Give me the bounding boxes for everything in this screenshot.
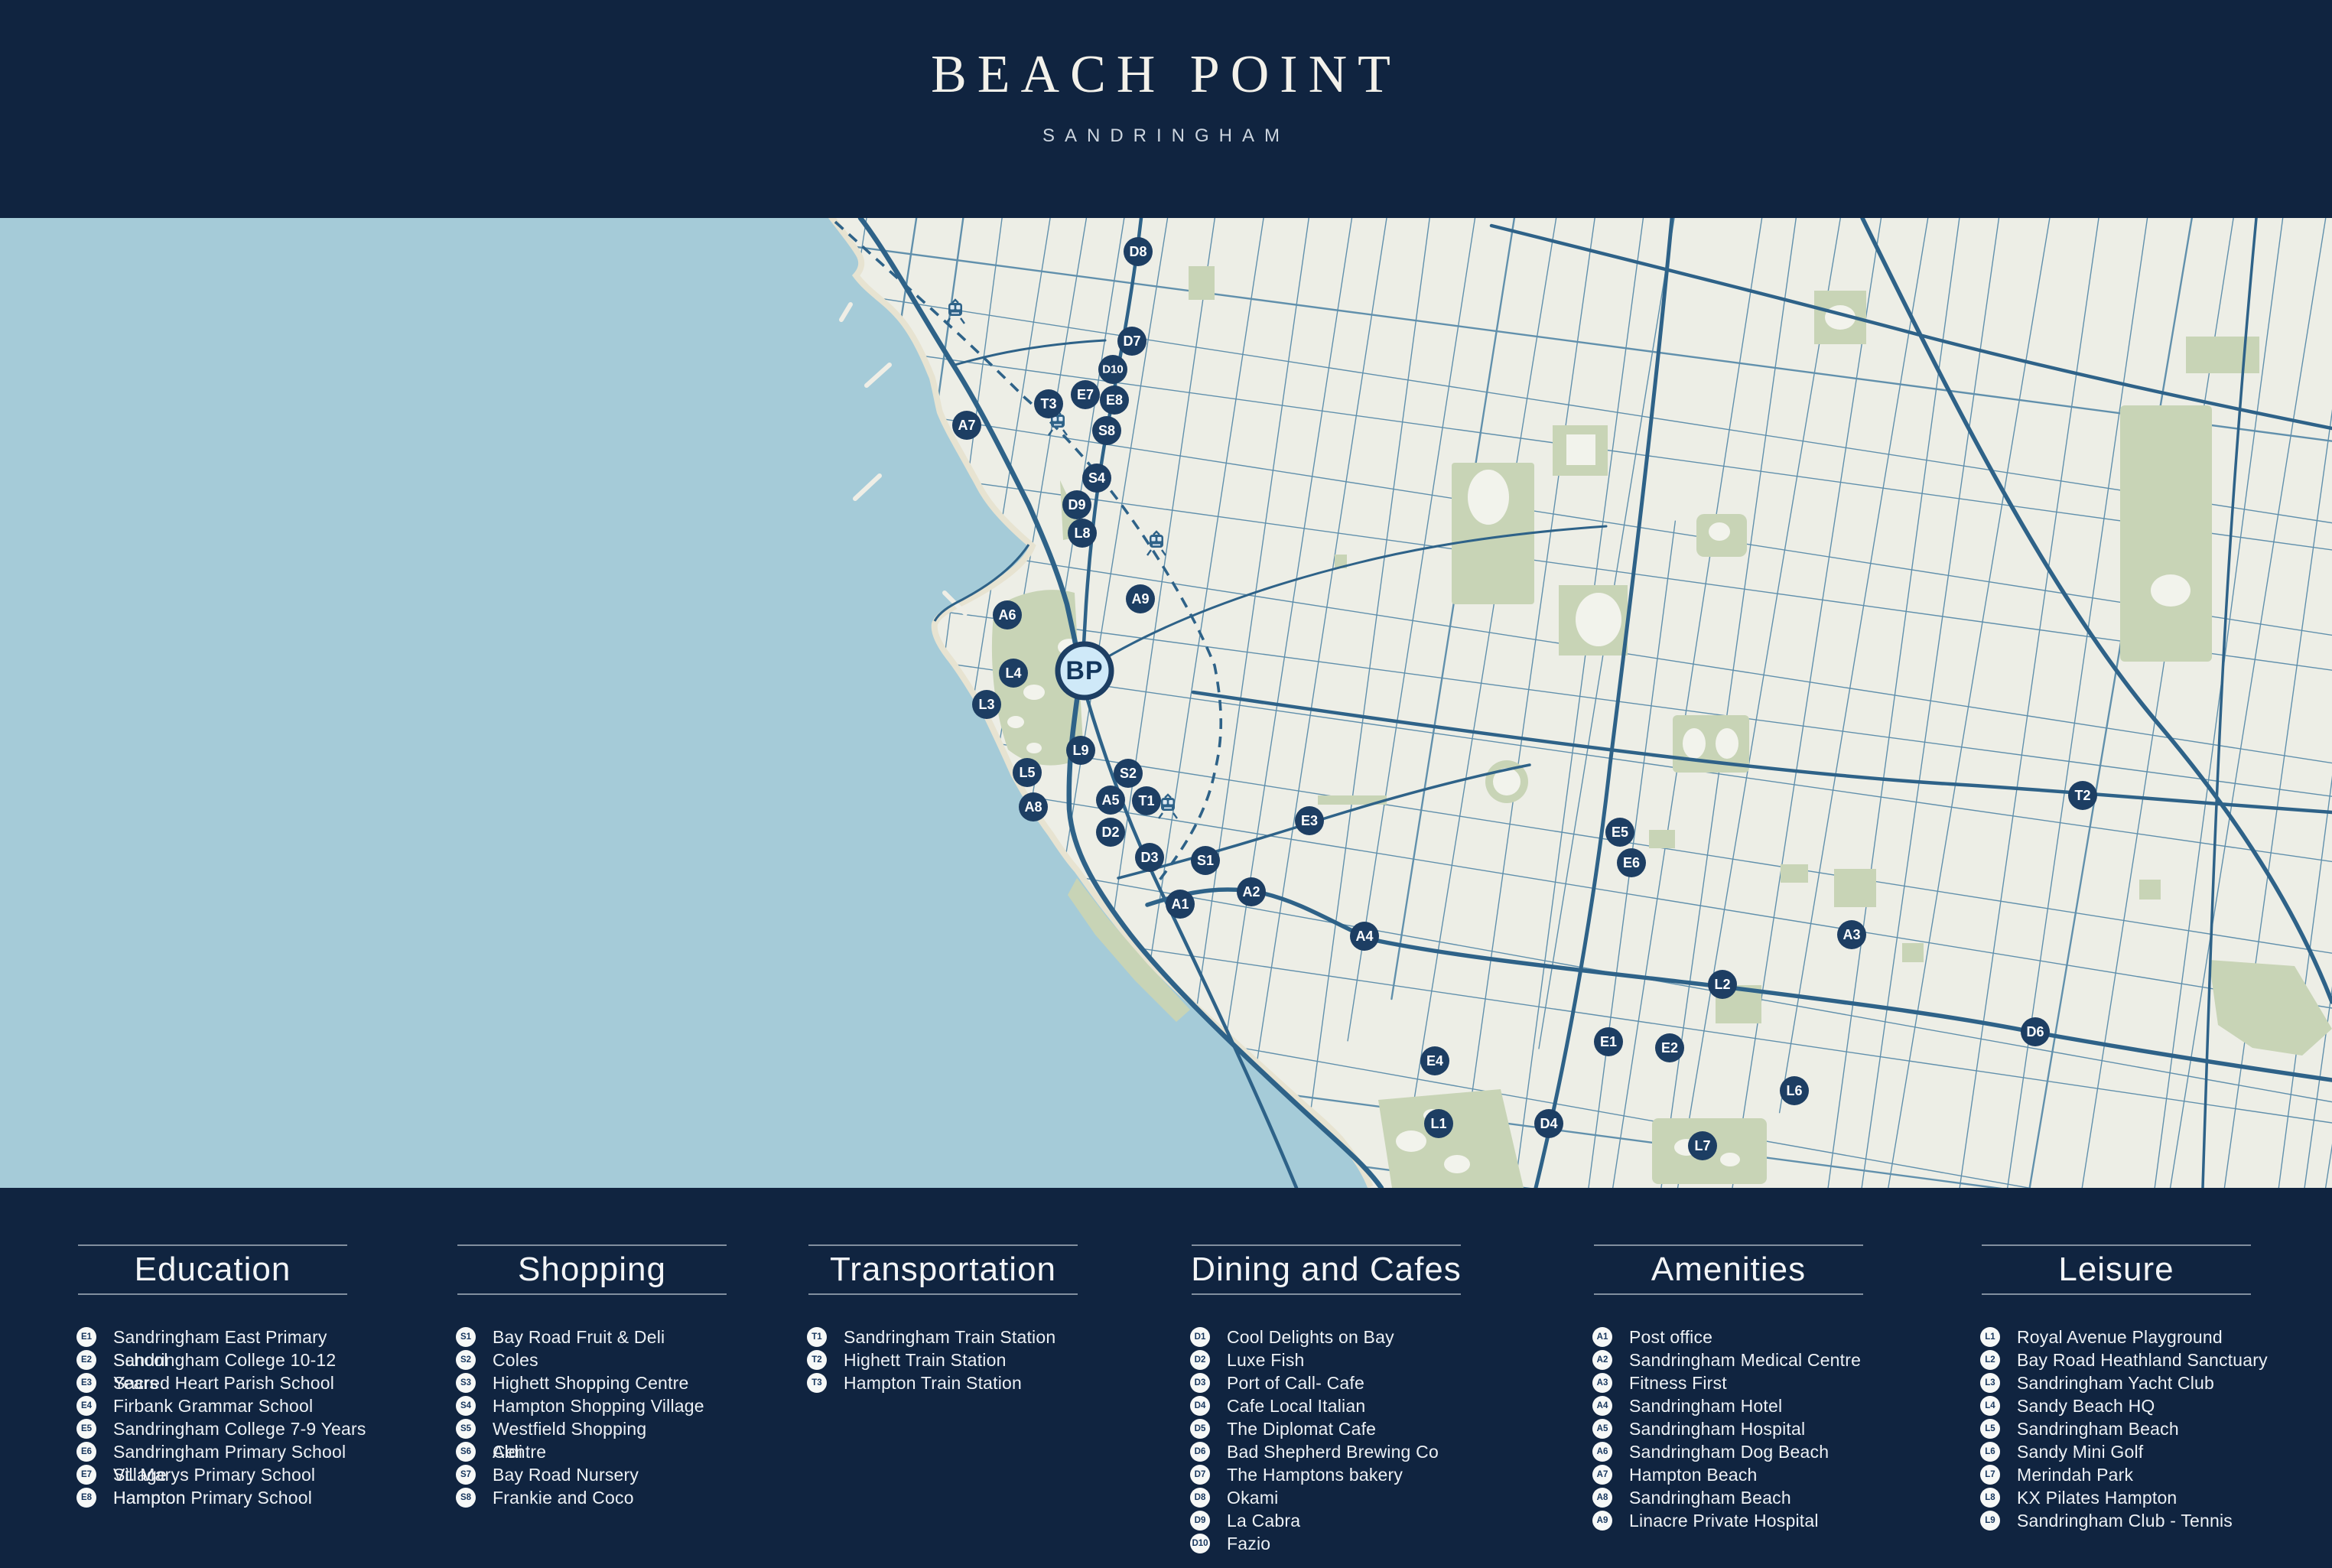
map-marker-E4: E4 — [1420, 1046, 1449, 1075]
map-marker-A1: A1 — [1166, 890, 1195, 919]
legend-item-D4: D4Cafe Local Italian — [1190, 1394, 1494, 1417]
legend-rule — [1192, 1244, 1461, 1246]
legend-badge-A6: A6 — [1592, 1442, 1612, 1462]
legend-badge-L1: L1 — [1980, 1327, 2000, 1347]
legend-label: Sandringham Beach — [1629, 1486, 1791, 1509]
legend-item-A9: A9Linacre Private Hospital — [1592, 1509, 1897, 1532]
legend-item-A4: A4Sandringham Hotel — [1592, 1394, 1897, 1417]
svg-text:L6: L6 — [1786, 1083, 1802, 1098]
legend-label: Port of Call- Cafe — [1227, 1371, 1364, 1394]
map-marker-D10: D10 — [1098, 355, 1127, 384]
legend-badge-L8: L8 — [1980, 1488, 2000, 1508]
legend-item-D8: D8Okami — [1190, 1486, 1494, 1509]
svg-text:E6: E6 — [1623, 855, 1640, 870]
map-marker-A2: A2 — [1237, 877, 1266, 906]
legend-label: La Cabra — [1227, 1509, 1300, 1532]
map-marker-D9: D9 — [1062, 490, 1091, 519]
legend-label: Sandringham Club - Tennis — [2017, 1509, 2233, 1532]
legend-rule — [457, 1244, 727, 1246]
map-marker-A7: A7 — [952, 411, 981, 440]
svg-text:A9: A9 — [1131, 591, 1149, 607]
page-title: BEACH POINT — [0, 0, 2332, 106]
svg-text:E2: E2 — [1661, 1040, 1678, 1056]
legend-item-S5: S5Westfield Shopping Centre — [456, 1417, 760, 1440]
svg-text:L5: L5 — [1019, 765, 1035, 780]
legend-title: Leisure — [1948, 1246, 2285, 1293]
svg-text:A7: A7 — [958, 418, 975, 433]
legend-badge-S7: S7 — [456, 1465, 476, 1485]
map-marker-E1: E1 — [1594, 1027, 1623, 1056]
svg-text:L9: L9 — [1072, 743, 1088, 758]
legend-label: Sandringham Train Station — [844, 1326, 1055, 1348]
legend-item-D3: D3Port of Call- Cafe — [1190, 1371, 1494, 1394]
legend-item-E1: E1Sandringham East Primary School — [76, 1326, 381, 1348]
svg-text:T1: T1 — [1138, 793, 1154, 808]
legend-item-L7: L7Merindah Park — [1980, 1463, 2285, 1486]
map-marker-S4: S4 — [1082, 464, 1111, 493]
legend-title: Shopping — [424, 1246, 760, 1293]
legend-badge-D3: D3 — [1190, 1373, 1210, 1393]
legend-column-shopping: ShoppingS1Bay Road Fruit & DeliS2ColesS3… — [424, 1188, 760, 1568]
legend-rule — [78, 1293, 347, 1295]
legend-label: Sandringham Hotel — [1629, 1394, 1782, 1417]
legend-label: Bay Road Nursery — [493, 1463, 639, 1486]
legend-item-L9: L9Sandringham Club - Tennis — [1980, 1509, 2285, 1532]
page-subtitle: SANDRINGHAM — [0, 125, 2332, 147]
legend-label: The Diplomat Cafe — [1227, 1417, 1376, 1440]
legend-badge-D4: D4 — [1190, 1396, 1210, 1416]
legend-title: Dining and Cafes — [1158, 1246, 1494, 1293]
map-marker-L7: L7 — [1688, 1131, 1717, 1160]
legend-badge-E6: E6 — [76, 1442, 96, 1462]
legend-badge-E1: E1 — [76, 1327, 96, 1347]
svg-text:A3: A3 — [1843, 927, 1860, 942]
legend-item-L4: L4Sandy Beach HQ — [1980, 1394, 2285, 1417]
legend-label: Merindah Park — [2017, 1463, 2133, 1486]
svg-text:L8: L8 — [1074, 525, 1090, 541]
map-marker-D3: D3 — [1135, 843, 1164, 872]
svg-text:L4: L4 — [1005, 665, 1021, 681]
legend-label: Hampton Primary School — [113, 1486, 312, 1509]
map-marker-E8: E8 — [1100, 385, 1129, 415]
svg-text:S8: S8 — [1098, 423, 1115, 438]
legend-label: Luxe Fish — [1227, 1348, 1305, 1371]
svg-text:E5: E5 — [1612, 825, 1628, 840]
legend-item-A8: A8Sandringham Beach — [1592, 1486, 1897, 1509]
map-marker-E5: E5 — [1605, 818, 1634, 847]
legend-badge-S2: S2 — [456, 1350, 476, 1370]
svg-text:L2: L2 — [1714, 977, 1730, 992]
legend-badge-T2: T2 — [807, 1350, 827, 1370]
legend-badge-D6: D6 — [1190, 1442, 1210, 1462]
legend-badge-E7: E7 — [76, 1465, 96, 1485]
legend-badge-A7: A7 — [1592, 1465, 1612, 1485]
legend-title: Amenities — [1560, 1246, 1897, 1293]
legend-rule — [457, 1293, 727, 1295]
map-marker-A3: A3 — [1837, 920, 1866, 949]
legend-item-S1: S1Bay Road Fruit & Deli — [456, 1326, 760, 1348]
legend-item-S8: S8Frankie and Coco — [456, 1486, 760, 1509]
svg-text:L7: L7 — [1694, 1138, 1710, 1153]
beach-point-map-page: BEACH POINT SANDRINGHAM — [0, 0, 2332, 1568]
legend-item-T2: T2Highett Train Station — [807, 1348, 1111, 1371]
svg-text:D6: D6 — [2026, 1024, 2044, 1039]
legend-label: Aldi — [493, 1440, 522, 1463]
map-marker-T1: T1 — [1132, 786, 1161, 815]
legend-item-L6: L6Sandy Mini Golf — [1980, 1440, 2285, 1463]
legend-item-T1: T1Sandringham Train Station — [807, 1326, 1111, 1348]
map-marker-E7: E7 — [1071, 380, 1100, 409]
legend-label: Sacred Heart Parish School — [113, 1371, 334, 1394]
map-marker-D2: D2 — [1096, 818, 1125, 847]
svg-text:L3: L3 — [978, 697, 994, 712]
map-marker-L3: L3 — [972, 690, 1001, 719]
svg-text:E7: E7 — [1077, 387, 1094, 402]
legend-item-E6: E6Sandringham Primary School Village — [76, 1440, 381, 1463]
legend-column-dining-and-cafes: Dining and CafesD1Cool Delights on BayD2… — [1158, 1188, 1494, 1568]
legend-item-E2: E2Sandringham College 10-12 Years — [76, 1348, 381, 1371]
legend-rule — [1192, 1293, 1461, 1295]
legend-rule — [808, 1293, 1078, 1295]
legend-badge-E4: E4 — [76, 1396, 96, 1416]
legend-item-D6: D6Bad Shepherd Brewing Co — [1190, 1440, 1494, 1463]
map-marker-L8: L8 — [1068, 519, 1097, 548]
legend-item-A2: A2Sandringham Medical Centre — [1592, 1348, 1897, 1371]
map-marker-D7: D7 — [1117, 327, 1146, 356]
legend-label: Sandringham College 7-9 Years — [113, 1417, 366, 1440]
legend-item-L1: L1Royal Avenue Playground — [1980, 1326, 2285, 1348]
legend-label: Bay Road Heathland Sanctuary — [2017, 1348, 2268, 1371]
legend-badge-E5: E5 — [76, 1419, 96, 1439]
legend-label: Sandringham Medical Centre — [1629, 1348, 1861, 1371]
legend-badge-L6: L6 — [1980, 1442, 2000, 1462]
legend-rule — [1982, 1244, 2251, 1246]
legend-item-S3: S3Highett Shopping Centre — [456, 1371, 760, 1394]
legend-badge-D9: D9 — [1190, 1511, 1210, 1531]
svg-text:E1: E1 — [1600, 1034, 1617, 1049]
map-marker-S8: S8 — [1092, 416, 1121, 445]
legend-item-A5: A5Sandringham Hospital — [1592, 1417, 1897, 1440]
legend-badge-A1: A1 — [1592, 1327, 1612, 1347]
legend: EducationE1Sandringham East Primary Scho… — [0, 1188, 2332, 1568]
legend-label: Sandringham Dog Beach — [1629, 1440, 1829, 1463]
legend-badge-L2: L2 — [1980, 1350, 2000, 1370]
legend-badge-D1: D1 — [1190, 1327, 1210, 1347]
legend-badge-L9: L9 — [1980, 1511, 2000, 1531]
map-marker-A6: A6 — [993, 600, 1022, 629]
svg-text:A8: A8 — [1024, 799, 1042, 815]
legend-label: Fitness First — [1629, 1371, 1727, 1394]
legend-item-D7: D7The Hamptons bakery — [1190, 1463, 1494, 1486]
legend-badge-S6: S6 — [456, 1442, 476, 1462]
legend-item-A1: A1Post office — [1592, 1326, 1897, 1348]
legend-label: Sandy Beach HQ — [2017, 1394, 2155, 1417]
legend-label: Hampton Beach — [1629, 1463, 1758, 1486]
legend-label: The Hamptons bakery — [1227, 1463, 1403, 1486]
map-marker-E2: E2 — [1655, 1033, 1684, 1062]
svg-text:D4: D4 — [1540, 1116, 1557, 1131]
legend-item-E5: E5Sandringham College 7-9 Years — [76, 1417, 381, 1440]
legend-badge-E3: E3 — [76, 1373, 96, 1393]
svg-text:S2: S2 — [1120, 766, 1137, 781]
svg-text:D10: D10 — [1102, 363, 1124, 376]
legend-item-L5: L5Sandringham Beach — [1980, 1417, 2285, 1440]
svg-text:L1: L1 — [1430, 1116, 1446, 1131]
svg-text:D9: D9 — [1068, 497, 1085, 512]
map-marker-L1: L1 — [1424, 1109, 1453, 1138]
legend-column-leisure: LeisureL1Royal Avenue PlaygroundL2Bay Ro… — [1948, 1188, 2285, 1568]
legend-label: Sandringham Yacht Club — [2017, 1371, 2214, 1394]
legend-label: Royal Avenue Playground — [2017, 1326, 2223, 1348]
legend-label: Frankie and Coco — [493, 1486, 634, 1509]
map-marker-A5: A5 — [1096, 786, 1125, 815]
bp-marker: BP — [1058, 644, 1111, 698]
svg-text:D2: D2 — [1101, 825, 1119, 840]
legend-item-A7: A7Hampton Beach — [1592, 1463, 1897, 1486]
legend-item-L2: L2Bay Road Heathland Sanctuary — [1980, 1348, 2285, 1371]
legend-item-A3: A3Fitness First — [1592, 1371, 1897, 1394]
legend-item-D9: D9La Cabra — [1190, 1509, 1494, 1532]
legend-badge-L4: L4 — [1980, 1396, 2000, 1416]
legend-badge-A4: A4 — [1592, 1396, 1612, 1416]
map-marker-L4: L4 — [999, 659, 1028, 688]
legend-badge-A3: A3 — [1592, 1373, 1612, 1393]
legend-item-L3: L3Sandringham Yacht Club — [1980, 1371, 2285, 1394]
map-marker-E3: E3 — [1295, 806, 1324, 835]
legend-badge-A2: A2 — [1592, 1350, 1612, 1370]
legend-label: Sandy Mini Golf — [2017, 1440, 2143, 1463]
legend-label: Post office — [1629, 1326, 1712, 1348]
svg-text:S1: S1 — [1197, 853, 1214, 868]
svg-text:A1: A1 — [1171, 896, 1189, 912]
svg-text:A5: A5 — [1101, 792, 1119, 808]
legend-badge-A9: A9 — [1592, 1511, 1612, 1531]
legend-badge-D7: D7 — [1190, 1465, 1210, 1485]
legend-label: Coles — [493, 1348, 538, 1371]
legend-item-A6: A6Sandringham Dog Beach — [1592, 1440, 1897, 1463]
svg-text:E3: E3 — [1301, 813, 1318, 828]
svg-text:T3: T3 — [1040, 396, 1056, 412]
map-marker-D6: D6 — [2021, 1017, 2050, 1046]
map-marker-D8: D8 — [1124, 237, 1153, 266]
legend-badge-A8: A8 — [1592, 1488, 1612, 1508]
legend-badge-D10: D10 — [1190, 1534, 1210, 1553]
legend-label: Cafe Local Italian — [1227, 1394, 1365, 1417]
legend-badge-S1: S1 — [456, 1327, 476, 1347]
map-marker-A4: A4 — [1350, 922, 1379, 951]
legend-badge-S5: S5 — [456, 1419, 476, 1439]
map-marker-T2: T2 — [2068, 781, 2097, 810]
svg-text:A4: A4 — [1355, 929, 1373, 944]
svg-text:D8: D8 — [1129, 244, 1146, 259]
legend-badge-L3: L3 — [1980, 1373, 2000, 1393]
legend-label: Sandringham Beach — [2017, 1417, 2179, 1440]
legend-label: Okami — [1227, 1486, 1278, 1509]
legend-rule — [1594, 1244, 1863, 1246]
legend-rule — [1594, 1293, 1863, 1295]
legend-rule — [808, 1244, 1078, 1246]
legend-title: Transportation — [775, 1246, 1111, 1293]
legend-badge-T3: T3 — [807, 1373, 827, 1393]
svg-text:E8: E8 — [1106, 392, 1123, 408]
legend-badge-S8: S8 — [456, 1488, 476, 1508]
legend-item-D10: D10Fazio — [1190, 1532, 1494, 1555]
legend-badge-L5: L5 — [1980, 1419, 2000, 1439]
svg-text:D3: D3 — [1140, 850, 1158, 865]
map-marker-S2: S2 — [1114, 759, 1143, 788]
legend-title: Education — [44, 1246, 381, 1293]
svg-text:S4: S4 — [1088, 470, 1105, 486]
legend-label: Bay Road Fruit & Deli — [493, 1326, 665, 1348]
legend-label: Fazio — [1227, 1532, 1270, 1555]
map-marker-L2: L2 — [1708, 970, 1737, 999]
legend-badge-E2: E2 — [76, 1350, 96, 1370]
map-marker-A8: A8 — [1019, 792, 1048, 821]
legend-label: Sandringham Hospital — [1629, 1417, 1805, 1440]
legend-item-D5: D5The Diplomat Cafe — [1190, 1417, 1494, 1440]
map-marker-E6: E6 — [1617, 848, 1646, 877]
legend-badge-D8: D8 — [1190, 1488, 1210, 1508]
map-marker-A9: A9 — [1126, 584, 1155, 613]
legend-item-S2: S2Coles — [456, 1348, 760, 1371]
legend-item-D1: D1Cool Delights on Bay — [1190, 1326, 1494, 1348]
legend-column-amenities: AmenitiesA1Post officeA2Sandringham Medi… — [1560, 1188, 1897, 1568]
legend-item-L8: L8KX Pilates Hampton — [1980, 1486, 2285, 1509]
map-marker-L6: L6 — [1780, 1076, 1809, 1105]
legend-item-E4: E4Firbank Grammar School — [76, 1394, 381, 1417]
map-marker-L5: L5 — [1013, 758, 1042, 787]
svg-text:A6: A6 — [998, 607, 1016, 623]
legend-column-transportation: TransportationT1Sandringham Train Statio… — [775, 1188, 1111, 1568]
legend-badge-E8: E8 — [76, 1488, 96, 1508]
legend-rule — [1982, 1293, 2251, 1295]
legend-label: Firbank Grammar School — [113, 1394, 313, 1417]
svg-text:BP: BP — [1065, 656, 1103, 685]
legend-label: Hampton Shopping Village — [493, 1394, 704, 1417]
legend-label: Cool Delights on Bay — [1227, 1326, 1394, 1348]
legend-label: Hampton Train Station — [844, 1371, 1022, 1394]
svg-text:D7: D7 — [1123, 333, 1140, 349]
svg-text:T2: T2 — [2074, 788, 2090, 803]
map-marker-T3: T3 — [1034, 389, 1063, 418]
legend-column-education: EducationE1Sandringham East Primary Scho… — [44, 1188, 381, 1568]
map-marker-S1: S1 — [1191, 846, 1220, 875]
map: D8D7D10E7E8T3S8S4D9L8A7A9A6L4L3L9L5S2A5T… — [0, 218, 2332, 1188]
legend-item-S4: S4Hampton Shopping Village — [456, 1394, 760, 1417]
map-marker-D4: D4 — [1534, 1109, 1563, 1138]
legend-item-E7: E7St. Marys Primary School Hampton — [76, 1463, 381, 1486]
legend-badge-D2: D2 — [1190, 1350, 1210, 1370]
legend-label: Bad Shepherd Brewing Co — [1227, 1440, 1439, 1463]
legend-label: Highett Train Station — [844, 1348, 1007, 1371]
legend-item-T3: T3Hampton Train Station — [807, 1371, 1111, 1394]
legend-badge-L7: L7 — [1980, 1465, 2000, 1485]
legend-rule — [78, 1244, 347, 1246]
legend-badge-T1: T1 — [807, 1327, 827, 1347]
legend-item-S7: S7Bay Road Nursery — [456, 1463, 760, 1486]
legend-badge-D5: D5 — [1190, 1419, 1210, 1439]
map-marker-L9: L9 — [1066, 736, 1095, 765]
legend-label: Linacre Private Hospital — [1629, 1509, 1819, 1532]
svg-text:A2: A2 — [1242, 884, 1260, 899]
header: BEACH POINT SANDRINGHAM — [0, 0, 2332, 218]
svg-text:E4: E4 — [1426, 1053, 1443, 1069]
legend-label: KX Pilates Hampton — [2017, 1486, 2177, 1509]
legend-badge-A5: A5 — [1592, 1419, 1612, 1439]
legend-badge-S3: S3 — [456, 1373, 476, 1393]
legend-item-D2: D2Luxe Fish — [1190, 1348, 1494, 1371]
legend-badge-S4: S4 — [456, 1396, 476, 1416]
legend-label: Highett Shopping Centre — [493, 1371, 689, 1394]
